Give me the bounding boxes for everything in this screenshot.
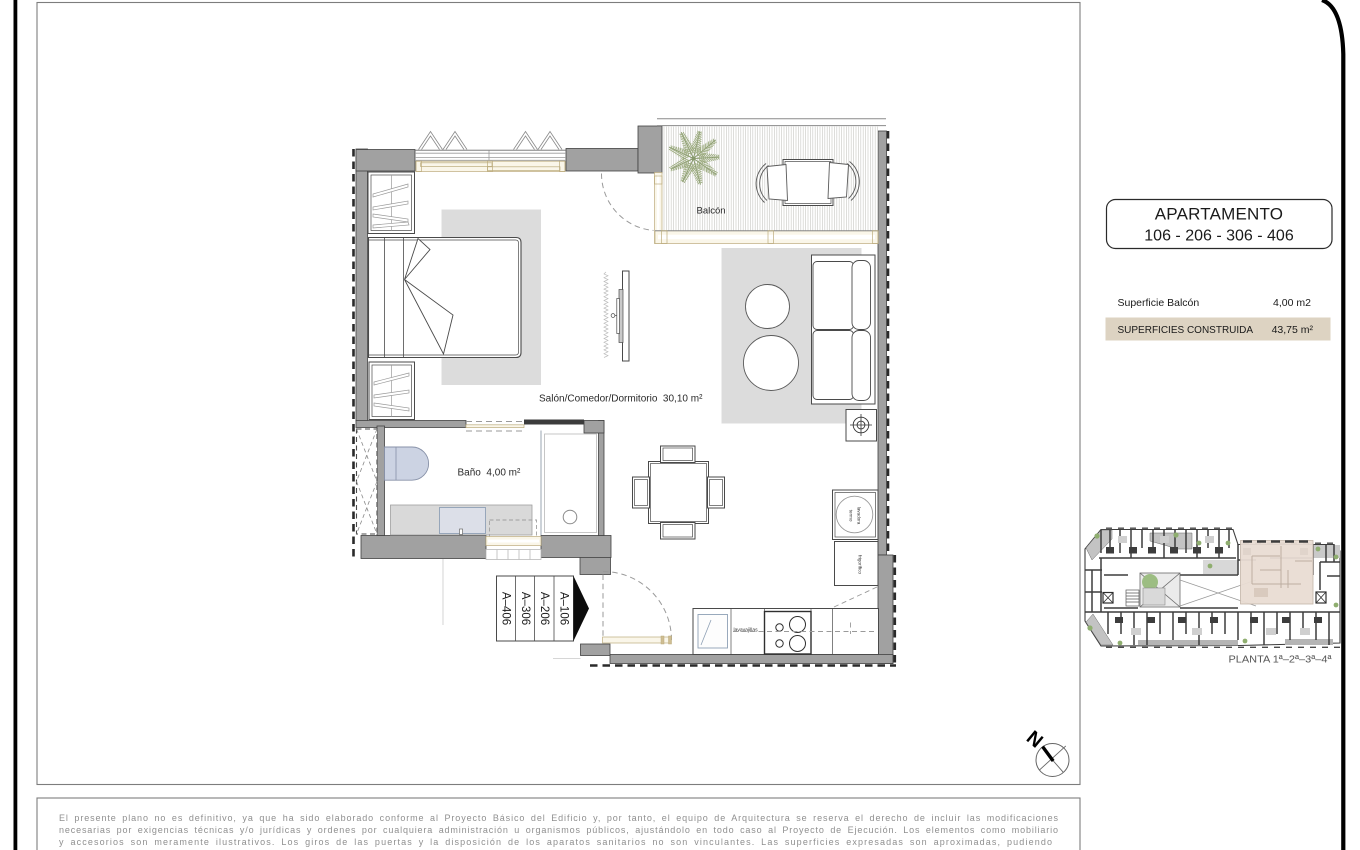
svg-text:A–406: A–406: [500, 592, 512, 625]
svg-text:termo: termo: [849, 510, 854, 522]
svg-text:4,00 m2: 4,00 m2: [1273, 297, 1311, 309]
svg-text:necesarias por exigencias técn: necesarias por exigencias técnicas y/o j…: [59, 825, 1058, 835]
svg-text:PLANTA 1ª–2ª–3ª–4ª: PLANTA 1ª–2ª–3ª–4ª: [1229, 655, 1332, 666]
svg-text:Salón/Comedor/Dormitorio 30,1: Salón/Comedor/Dormitorio 30,10 m²: [539, 394, 703, 405]
svg-text:A–106: A–106: [557, 592, 569, 625]
svg-text:A–306: A–306: [519, 592, 531, 625]
svg-text:106 - 206 - 306 - 406: 106 - 206 - 306 - 406: [1144, 228, 1294, 245]
svg-text:A–206: A–206: [538, 592, 550, 625]
svg-text:y accesorios son meramente ilu: y accesorios son meramente ilustrativos.…: [59, 837, 1052, 847]
svg-text:43,75 m²: 43,75 m²: [1272, 324, 1314, 336]
svg-text:Baño 4,00 m²: Baño 4,00 m²: [458, 468, 521, 479]
svg-text:APARTAMENTO: APARTAMENTO: [1155, 205, 1283, 224]
svg-text:SUPERFICIES CONSTRUIDA: SUPERFICIES CONSTRUIDA: [1118, 325, 1254, 336]
svg-text:Balcón: Balcón: [697, 206, 726, 217]
svg-text:frigorífico: frigorífico: [858, 555, 863, 574]
svg-text:Superficie Balcón: Superficie Balcón: [1118, 297, 1200, 309]
svg-text:lavadora: lavadora: [857, 507, 862, 525]
svg-text:lavavajillas: lavavajillas: [734, 628, 759, 634]
svg-text:El presente plano no es defini: El presente plano no es definitivo, ya q…: [59, 813, 1059, 823]
